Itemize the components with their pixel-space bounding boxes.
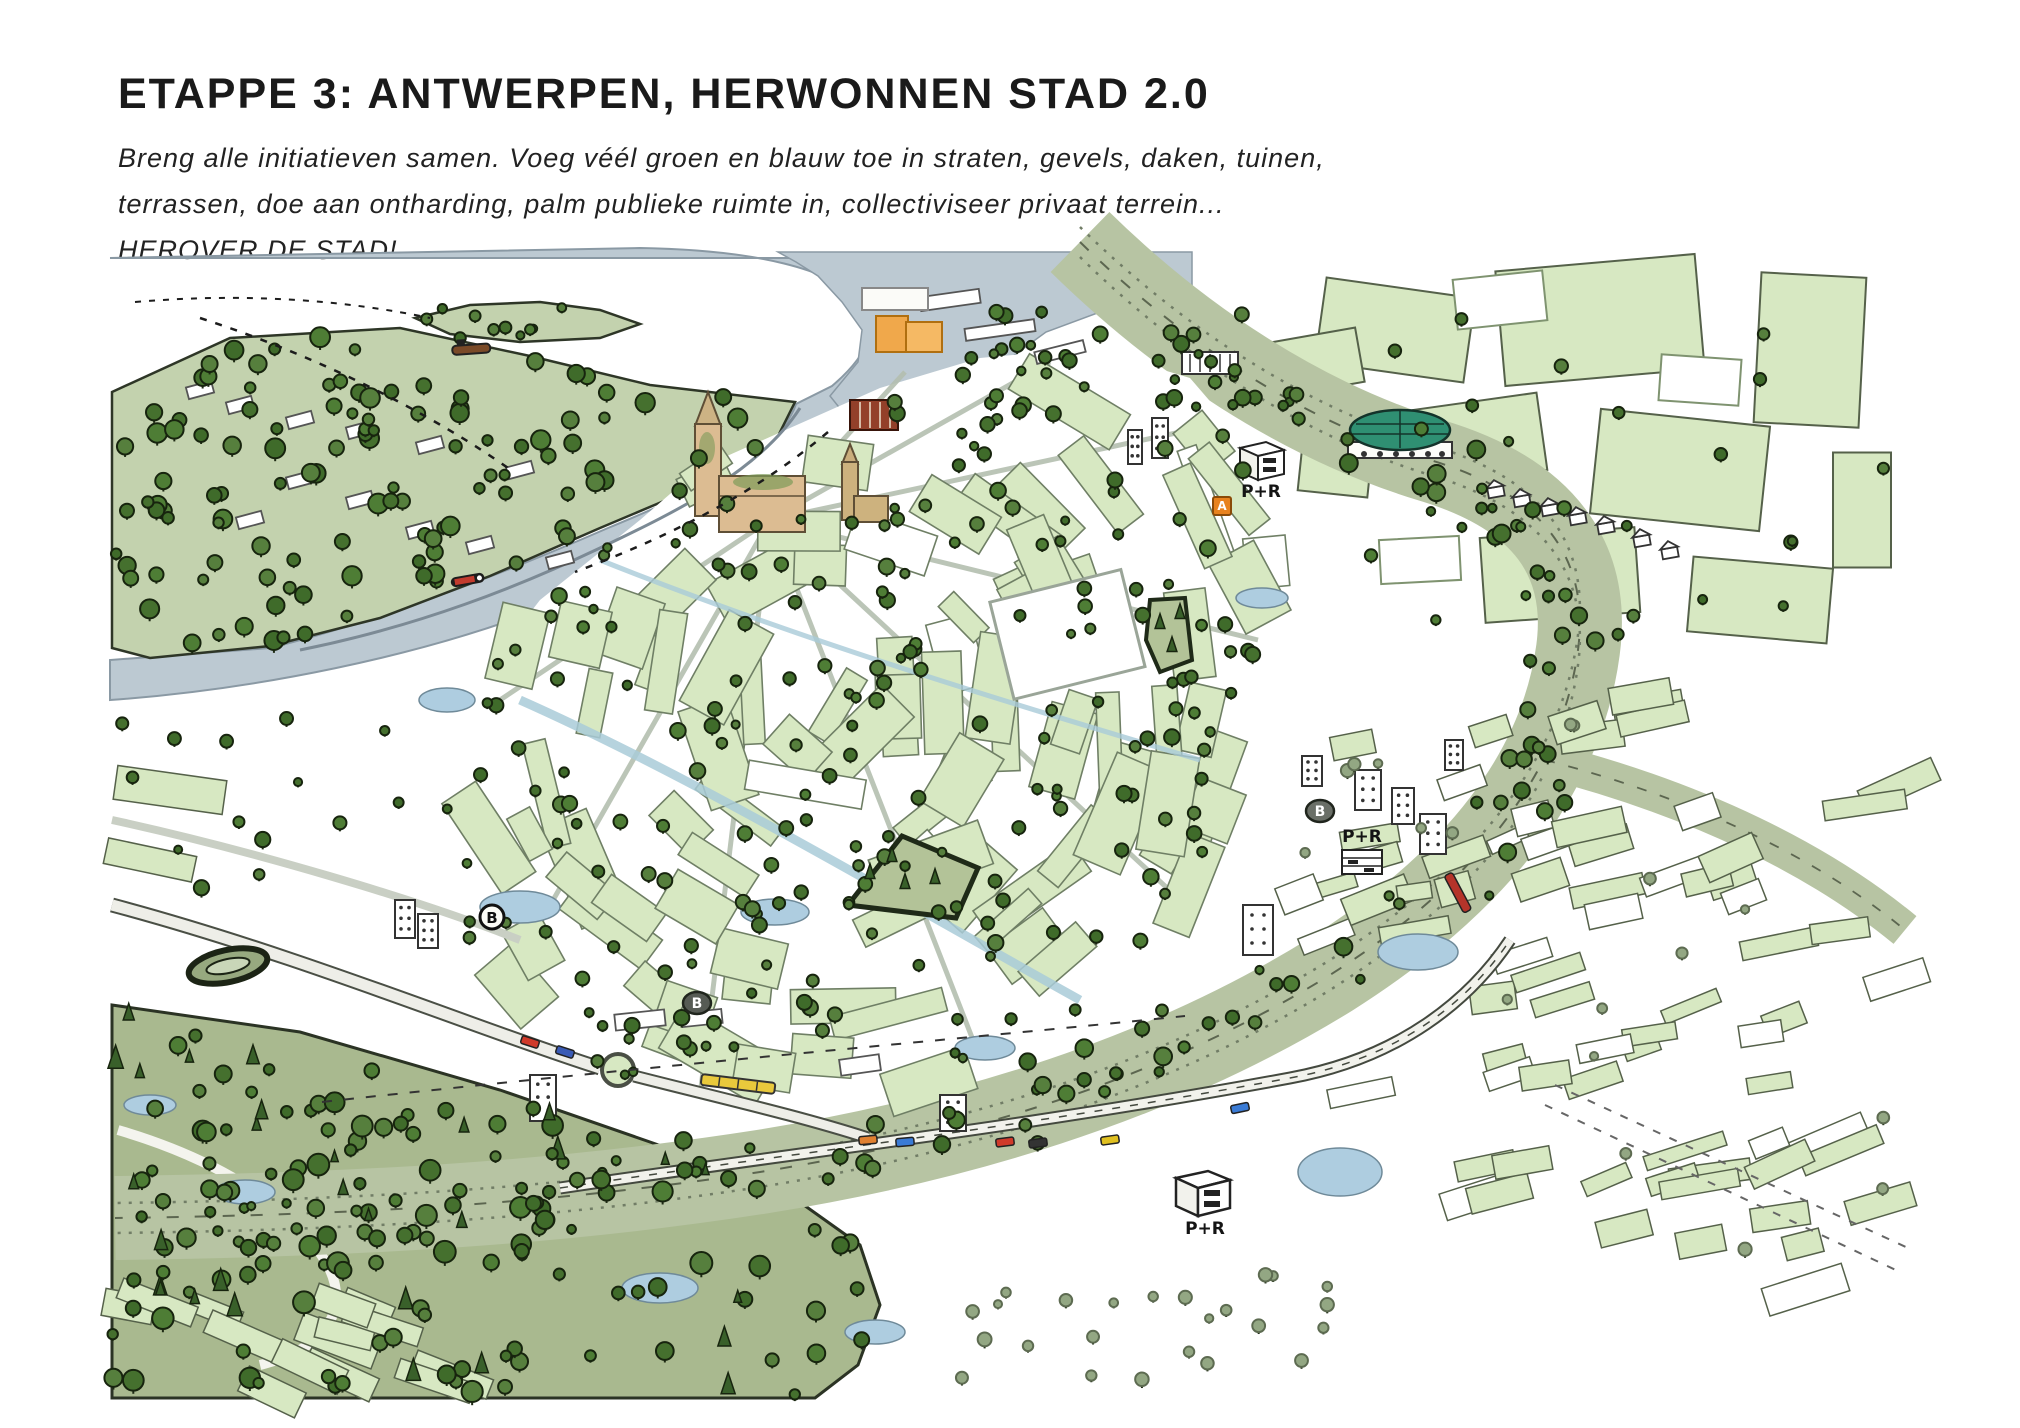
sportpaleis-icon [1348,410,1452,458]
park-and-ride-label-bottom: P+R [1185,1219,1225,1239]
park-ride-garage-bottom-icon [1176,1171,1230,1216]
svg-text:B: B [1315,804,1326,820]
svg-text:B: B [486,909,497,927]
svg-text:A: A [1217,499,1227,513]
north-bank-shape [415,302,640,342]
antwerp-map-illustration: P+R P+R P+R B B B A [0,0,2020,1428]
document-page: ETAPPE 3: ANTWERPEN, HERWONNEN STAD 2.0 … [0,0,2020,1428]
park-and-ride-label-right: P+R [1342,827,1382,847]
svg-text:P+R: P+R [1342,827,1382,847]
transit-stop-badge-b1: B [480,905,504,929]
transit-stop-badge-b2: B [683,992,711,1014]
park-and-ride-label-top: P+R [1241,482,1281,502]
transit-stop-badge-a: A [1213,497,1231,515]
svg-text:B: B [692,996,703,1012]
barge-icon [452,337,491,355]
svg-text:P+R: P+R [1185,1219,1225,1239]
arena-oval-icon [186,942,271,990]
park-ride-garage-right-icon [1342,850,1382,874]
svg-text:P+R: P+R [1241,482,1281,502]
transit-stop-badge-b3: B [1306,800,1334,822]
